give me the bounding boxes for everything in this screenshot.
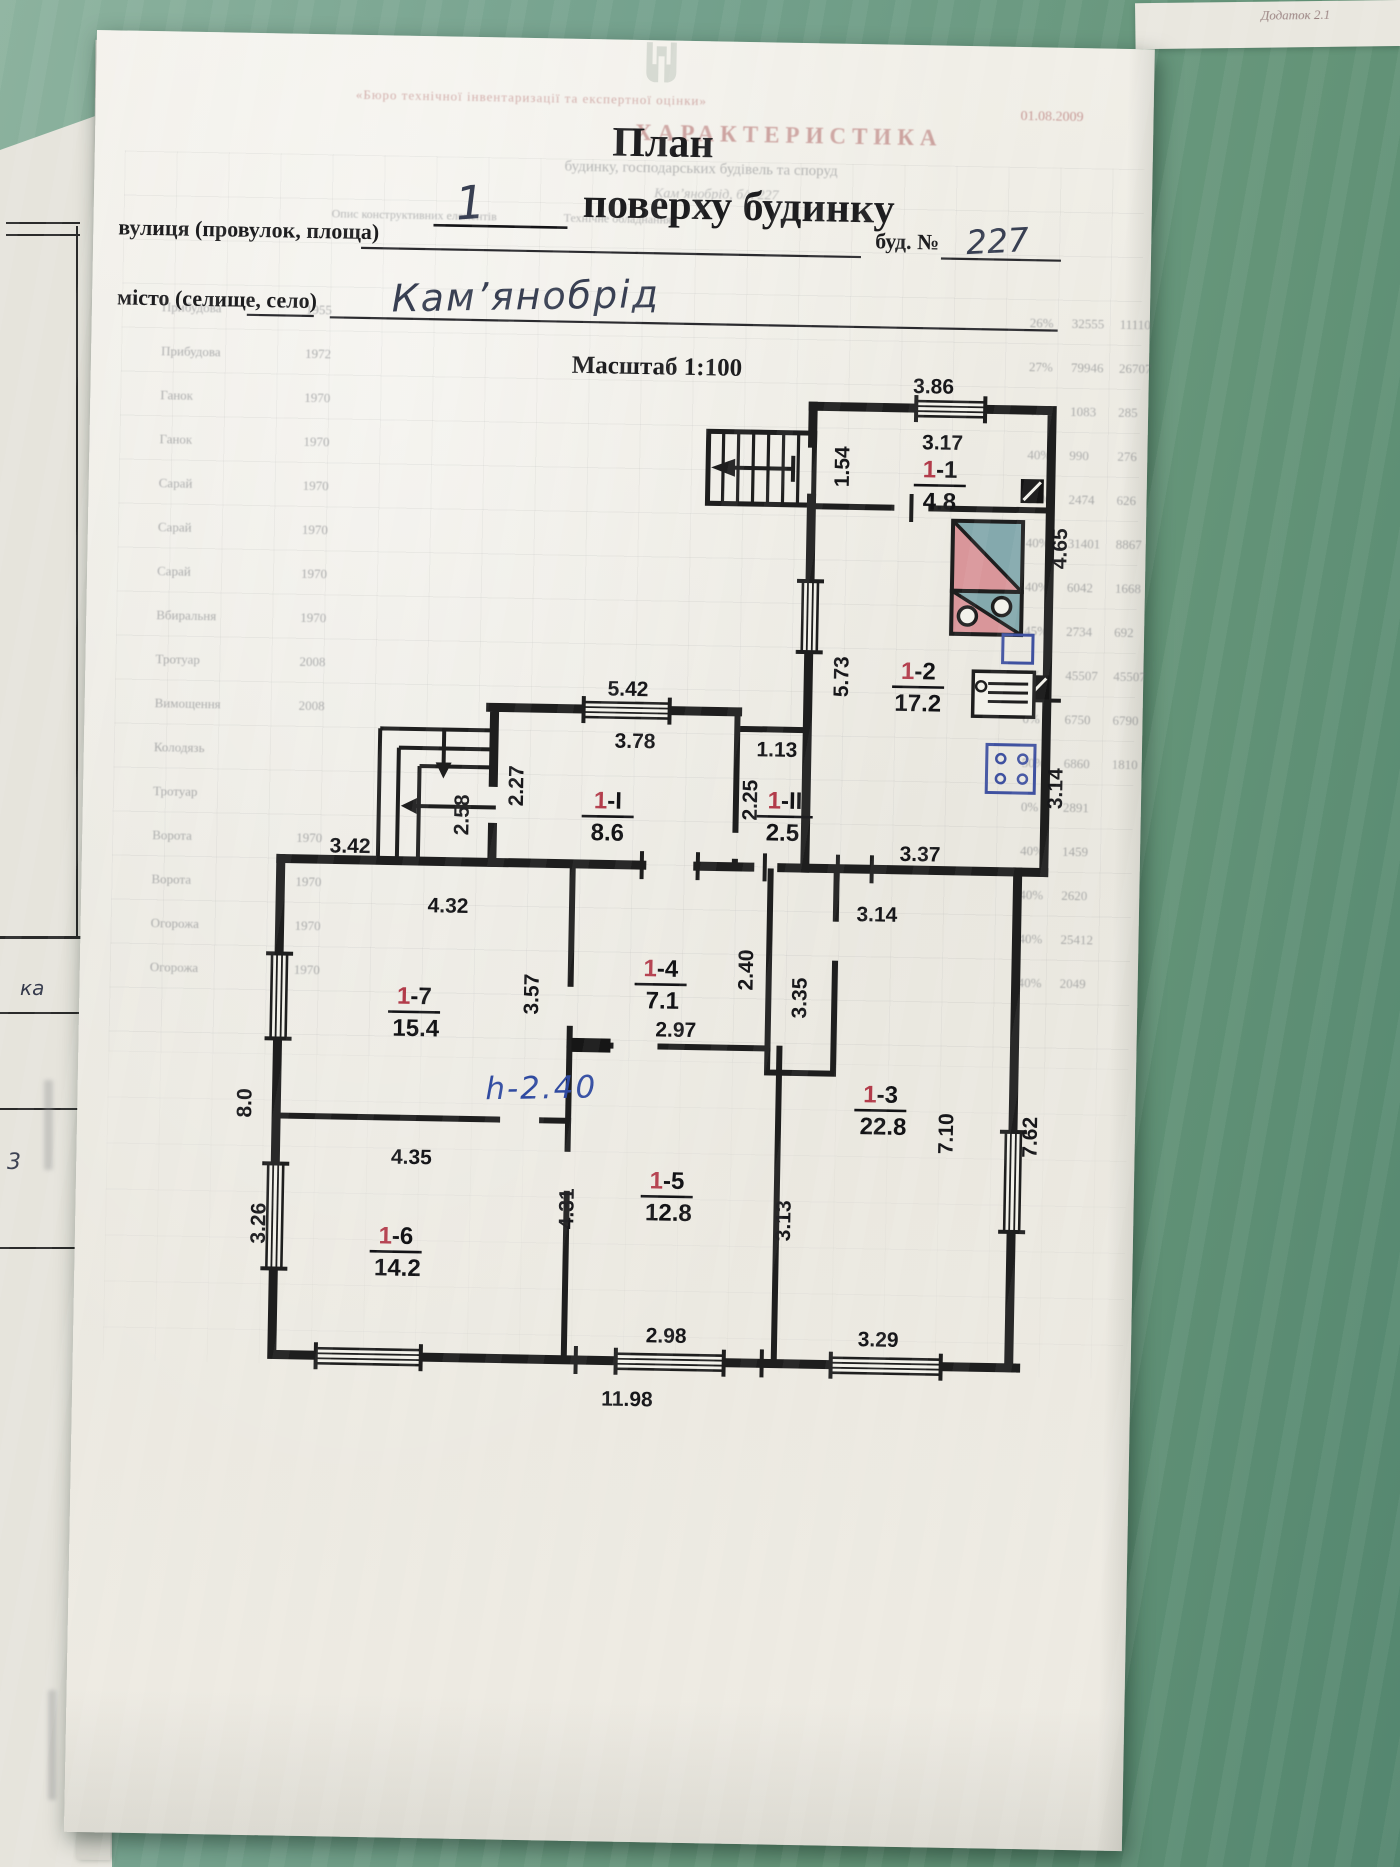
room-number-suffix: -II — [781, 788, 803, 815]
dim-4-35: 4.35 — [391, 1146, 433, 1170]
floor-number-handwritten: 1 — [454, 175, 487, 231]
handwritten-fragment: ка — [20, 976, 44, 1000]
dim-2-27: 2.27 — [505, 765, 529, 806]
room-label-1-5: 1-512.8 — [640, 1167, 693, 1227]
height-note-handwritten: h-2.40 — [485, 1069, 597, 1107]
floor-plan-sheet: «Бюро технічної інвентаризації та експер… — [64, 30, 1155, 1851]
street-field-line — [361, 248, 861, 257]
room-number-suffix: -2 — [914, 658, 936, 685]
scale-label: Масштаб 1:100 — [571, 352, 742, 382]
svg-text:1-II: 1-II — [767, 787, 802, 815]
table-line — [6, 234, 80, 236]
window-symbol — [315, 1342, 420, 1371]
dim-3-78: 3.78 — [614, 730, 656, 754]
dim-3-42: 3.42 — [329, 834, 370, 858]
windows — [259, 383, 1041, 1382]
dim-3-35: 3.35 — [788, 977, 812, 1019]
window-symbol — [796, 581, 824, 652]
dim-2-97: 2.97 — [655, 1018, 696, 1042]
dim-3-14-right: 3.14 — [1044, 768, 1068, 810]
svg-text:1-5: 1-5 — [649, 1167, 684, 1195]
room-number-prefix: 1 — [863, 1081, 877, 1108]
room-number-suffix: -6 — [392, 1223, 414, 1250]
dim-3-14-top: 3.14 — [856, 903, 898, 927]
form-title: План — [612, 119, 714, 167]
floor-plan-drawing: План 1 поверху будинку вулиця (провулок,… — [64, 30, 1155, 1851]
corner-note: Додаток 2.1 — [1261, 7, 1330, 24]
dim-7-62: 7.62 — [1018, 1117, 1042, 1158]
room-number-prefix: 1 — [922, 456, 936, 483]
dim-7-10: 7.10 — [935, 1113, 959, 1154]
table-line — [76, 226, 78, 938]
dim-4-32: 4.32 — [427, 894, 468, 918]
room-number-prefix: 1 — [643, 955, 657, 982]
dim-3-29: 3.29 — [857, 1328, 898, 1352]
room-label-1-7: 1-715.4 — [388, 983, 441, 1043]
street-field-label: вулиця (провулок, площа) — [118, 214, 379, 244]
table-line — [0, 1012, 90, 1014]
room-number-prefix: 1 — [594, 787, 608, 814]
room-area: 17.2 — [894, 690, 941, 718]
room-label-1-6: 1-614.2 — [369, 1222, 422, 1282]
room-label-1-4: 1-47.1 — [634, 955, 687, 1015]
room-area: 2.5 — [765, 819, 799, 847]
room-number-prefix: 1 — [901, 658, 915, 685]
svg-text:1-4: 1-4 — [643, 955, 679, 983]
dim-3-37: 3.37 — [899, 843, 940, 867]
room-label-1-2: 1-217.2 — [892, 658, 945, 718]
room-number-prefix: 1 — [397, 983, 411, 1010]
dimension-labels: 3.86 3.17 1.54 4.65 5.73 3.14 3.37 5.42 … — [228, 363, 1075, 1419]
room-area: 14.2 — [374, 1254, 421, 1282]
dim-2-98: 2.98 — [646, 1324, 688, 1348]
dim-4-31: 4.31 — [555, 1188, 579, 1230]
room-number-prefix: 1 — [649, 1167, 663, 1194]
city-field-value: Кам’янобрід — [391, 272, 660, 320]
window-symbol — [916, 395, 985, 423]
radiator-icon — [973, 671, 1035, 717]
room-number-suffix: -1 — [936, 456, 958, 483]
kitchen-fixtures — [948, 521, 1039, 794]
svg-text:1-6: 1-6 — [378, 1222, 413, 1250]
window-symbol — [265, 953, 294, 1038]
handwritten-fragment: 3 — [7, 1150, 21, 1175]
room-area: 12.8 — [645, 1199, 692, 1227]
building-no-label: буд. № — [875, 228, 939, 254]
dim-3-17: 3.17 — [922, 431, 963, 455]
table-line — [6, 222, 80, 224]
building-no-value: 227 — [965, 220, 1030, 262]
room-number-suffix: -4 — [657, 955, 679, 982]
floor-number-line — [433, 225, 567, 227]
city-field-label: місто (селище, село) — [117, 284, 317, 313]
svg-text:1-I: 1-I — [594, 787, 623, 815]
photo-of-document: ка 3 Додаток 2.1 «Бюро технічної інвента… — [0, 0, 1400, 1867]
dim-4-65: 4.65 — [1048, 528, 1072, 570]
room-area: 8.6 — [590, 819, 624, 847]
door-leaf-icon — [571, 1038, 610, 1053]
form-subtitle: поверху будинку — [582, 181, 895, 233]
gas-stove-icon — [986, 744, 1035, 793]
dim-11-98: 11.98 — [601, 1387, 653, 1411]
entrance-arrow-icon — [401, 798, 417, 814]
entrance-arrow-icon — [435, 762, 451, 778]
dim-1-13: 1.13 — [756, 738, 797, 762]
room-number-suffix: -5 — [663, 1168, 685, 1195]
room-number-prefix: 1 — [378, 1222, 392, 1249]
room-area: 22.8 — [859, 1113, 906, 1141]
svg-text:1-7: 1-7 — [397, 983, 432, 1011]
window-symbol — [615, 1348, 723, 1377]
dim-5-73: 5.73 — [830, 656, 854, 697]
svg-text:1-2: 1-2 — [901, 658, 936, 686]
stairs-symbol — [707, 431, 814, 505]
room-number-suffix: -I — [607, 787, 622, 814]
dim-2-40: 2.40 — [735, 949, 759, 990]
room-area: 15.4 — [392, 1015, 440, 1043]
corner-shower-icon — [952, 521, 1023, 592]
unreadable-vertical-text — [48, 1690, 56, 1800]
room-number-suffix: -7 — [410, 983, 432, 1010]
sink-icon — [951, 591, 1022, 635]
svg-text:1-3: 1-3 — [863, 1081, 898, 1109]
dim-3-86: 3.86 — [913, 375, 954, 399]
dim-5-42: 5.42 — [607, 677, 648, 701]
entrance-arrows — [401, 731, 498, 816]
dim-8-0: 8.0 — [233, 1088, 257, 1118]
dim-2-58: 2.58 — [450, 794, 474, 836]
svg-text:1-1: 1-1 — [922, 456, 957, 484]
dim-1-54: 1.54 — [831, 446, 855, 488]
undersheet-corner: Додаток 2.1 — [1135, 0, 1400, 49]
window-symbol — [830, 1352, 940, 1381]
boiler-box-icon — [1003, 635, 1034, 664]
form-header: План 1 поверху будинку вулиця (провулок,… — [116, 110, 1064, 387]
room-label-1-3: 1-322.8 — [854, 1081, 907, 1141]
dim-3-13: 3.13 — [772, 1200, 796, 1241]
dim-2-25: 2.25 — [739, 779, 763, 821]
room-area: 7.1 — [645, 987, 679, 1015]
room-label-1-I: 1-I8.6 — [581, 787, 634, 847]
room-number-prefix: 1 — [767, 787, 781, 814]
city-label-underline — [247, 315, 314, 316]
dim-3-26: 3.26 — [247, 1203, 271, 1244]
unreadable-vertical-text — [44, 1080, 53, 1170]
dim-3-57: 3.57 — [520, 973, 544, 1014]
room-number-suffix: -3 — [876, 1081, 898, 1108]
room-area: 4.8 — [923, 488, 957, 516]
